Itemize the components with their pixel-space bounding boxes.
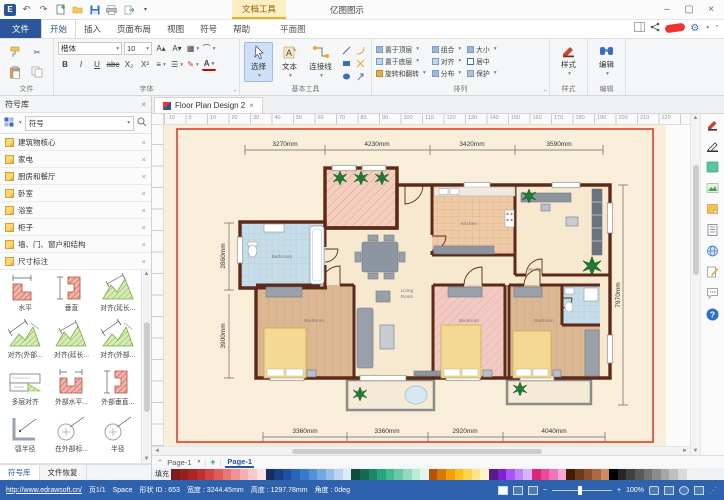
ribbon-group-file: ✂ 文件 — [0, 39, 54, 95]
palette-swatch[interactable] — [661, 469, 670, 480]
palette-swatch[interactable] — [437, 469, 446, 480]
space-label: Space — [113, 487, 133, 494]
palette-swatch[interactable] — [171, 469, 180, 480]
ribbon-tab-bar: 文件 开始 插入 页面布局 视图 符号 帮助 平面图 ⚙ ▾ ⌃ — [0, 20, 724, 39]
library-item-bathroom[interactable]: 浴室× — [0, 202, 151, 219]
shape-id: 形状 ID : 653 — [139, 485, 179, 495]
hscroll-thumb[interactable] — [292, 449, 542, 454]
rectangle-tool-icon[interactable] — [340, 57, 353, 69]
ruler-number: 180 — [576, 115, 585, 121]
ribbon: ✂ 文件 楷体▾ 10▾ A▴ A▾ ▦▾ ⌒▾ B I U abc X₂ X² — [0, 39, 724, 96]
ruler-number: 160 — [533, 115, 542, 121]
increase-font-icon[interactable]: A▴ — [154, 42, 168, 55]
distribute-button[interactable]: 分布▾ — [432, 68, 461, 78]
palette-swatch[interactable] — [515, 469, 524, 480]
palette-swatch[interactable] — [455, 469, 464, 480]
ribbon-group-arrange: 置于顶层▾ 置于底层▾ 旋转和翻转▾ 组合▾ 对齐▾ 分布▾ 大小▾ 居中 保护… — [372, 39, 550, 95]
horizontal-scrollbar[interactable]: ◄ ► — [152, 446, 690, 455]
arc-text-icon[interactable]: ⌒▾ — [202, 42, 216, 55]
draw-tools — [340, 42, 367, 82]
palette-swatch[interactable] — [549, 469, 558, 480]
text-tool-button[interactable]: A 文本▾ — [275, 42, 304, 82]
border-style-icon[interactable]: ▦▾ — [186, 42, 200, 55]
palette-swatch[interactable] — [678, 469, 687, 480]
underline-button[interactable]: U — [90, 58, 104, 71]
normal-view-icon[interactable] — [498, 486, 508, 495]
symbol-library-panel: 符号库× ▾ 符号▾ 建筑物核心× 家电× 厨房和餐厅× 卧室× 浴室× 柜子×… — [0, 96, 152, 480]
palette-swatch[interactable] — [283, 469, 292, 480]
right-tool-strip: ▲ ▼ ? — [690, 114, 724, 455]
svg-text:A: A — [286, 48, 292, 58]
panel-close-icon[interactable]: × — [141, 100, 146, 109]
document-lines-icon[interactable] — [706, 223, 720, 237]
ruler-number: 40 — [275, 115, 281, 121]
palette-swatch[interactable] — [257, 469, 266, 480]
pen-settings-icon[interactable] — [706, 139, 720, 153]
tab-symbol-library[interactable]: 符号库 — [0, 465, 40, 480]
page-tab-page1[interactable]: Page-1 — [225, 457, 254, 468]
distribute-icon — [432, 70, 439, 77]
symbol-multilayer-align[interactable]: 多层对齐 — [2, 366, 48, 413]
palette-swatch[interactable] — [446, 469, 455, 480]
edit-button[interactable]: 编辑▾ — [592, 42, 621, 79]
undo-icon[interactable]: ↶ — [20, 3, 33, 16]
fill-label: 填充 — [155, 469, 169, 479]
page-tab-bar: ⌃ Page-1 ▾ | + | Page-1 — [152, 455, 724, 468]
library-item-building-core[interactable]: 建筑物核心× — [0, 134, 151, 151]
library-item-cabinet[interactable]: 柜子× — [0, 219, 151, 236]
left-panel-tabs: 符号库 文件恢复 — [0, 464, 151, 480]
ruler-number: 110 — [425, 115, 434, 121]
dim-top-4: 3590mm — [546, 141, 571, 148]
symbol-outer-vertical[interactable]: 外部垂直... — [95, 366, 141, 413]
center-icon — [467, 58, 474, 65]
ribbon-group-style: 样式▾ 样式 — [550, 39, 588, 95]
ruler-number: 70 — [339, 115, 345, 121]
app-window: E ↶ ↷ ▾ 文档工具 亿图图示 – ▢ × 文件 开始 插入 页面布局 视图… — [0, 0, 724, 500]
size-button[interactable]: 大小▾ — [467, 44, 496, 54]
palette-swatch[interactable] — [480, 469, 489, 480]
svg-text:?: ? — [710, 309, 715, 319]
new-page-icon[interactable] — [54, 3, 67, 16]
library-item-bedroom[interactable]: 卧室× — [0, 185, 151, 202]
canvas-vscrollbar[interactable]: ▲ ▼ — [690, 114, 700, 455]
rotate-icon — [376, 70, 383, 77]
ruler-corner — [152, 114, 164, 125]
group-label-font: 字体 — [54, 84, 239, 94]
palette-swatch[interactable] — [403, 469, 412, 480]
symbol-outer-label[interactable]: 在外部标... — [48, 413, 94, 460]
dim-bottom-1: 3360mm — [292, 428, 317, 435]
color-palette — [171, 469, 695, 480]
settings-gear-icon[interactable]: ⚙ — [690, 23, 699, 34]
pen-tool-icon[interactable] — [354, 70, 367, 82]
palette-swatch[interactable] — [592, 469, 601, 480]
palette-swatch[interactable] — [523, 469, 532, 480]
palette-swatch[interactable] — [635, 469, 644, 480]
zoom-in-icon[interactable]: + — [617, 487, 621, 494]
palette-swatch[interactable] — [429, 469, 438, 480]
note-icon[interactable] — [706, 202, 720, 216]
comment-icon[interactable] — [706, 286, 720, 300]
print-icon[interactable] — [105, 3, 118, 16]
palette-swatch[interactable] — [558, 469, 567, 480]
ruler-number: 140 — [490, 115, 499, 121]
edit-page-icon[interactable] — [706, 265, 720, 279]
page-selector-caret-icon[interactable]: ▾ — [197, 459, 200, 465]
document-close-icon[interactable]: × — [249, 101, 254, 110]
tab-file-recovery[interactable]: 文件恢复 — [40, 465, 87, 480]
page-view-icon[interactable] — [513, 486, 523, 495]
palette-swatch[interactable] — [274, 469, 283, 480]
ribbon-group-font: 楷体▾ 10▾ A▴ A▾ ▦▾ ⌒▾ B I U abc X₂ X² ≡▾ ☰… — [54, 39, 240, 95]
superscript-button[interactable]: X² — [138, 58, 152, 71]
palette-swatch[interactable] — [223, 469, 232, 480]
tab-floorplan-contextual[interactable]: 平面图 — [272, 19, 314, 38]
dim-bottom-2: 3360mm — [374, 428, 399, 435]
palette-swatch[interactable] — [687, 469, 696, 480]
symbol-grid: 水平 垂直 对齐(延长... 对齐(外部... 对齐(延长... 对齐(外部..… — [0, 270, 141, 463]
ruler-number: 120 — [447, 115, 456, 121]
fit-window-icon[interactable] — [649, 486, 659, 495]
palette-swatch[interactable] — [566, 469, 575, 480]
ruler-number: 80 — [361, 115, 367, 121]
palette-swatch[interactable] — [412, 469, 421, 480]
vscroll-thumb[interactable] — [693, 165, 699, 275]
paste-icon[interactable] — [8, 66, 22, 79]
palette-swatch[interactable] — [291, 469, 300, 480]
palette-swatch[interactable] — [369, 469, 378, 480]
library-close-icon[interactable]: × — [142, 172, 146, 181]
palette-swatch[interactable] — [317, 469, 326, 480]
ruler-number: 190 — [597, 115, 606, 121]
library-close-icon[interactable]: × — [142, 206, 146, 215]
scroll-up-icon[interactable]: ▲ — [144, 271, 150, 277]
group-label-style: 样式 — [550, 84, 587, 94]
palette-swatch[interactable] — [626, 469, 635, 480]
panel-toggle-icon[interactable] — [634, 22, 645, 34]
ruler-number: 100 — [404, 115, 413, 121]
cut-icon[interactable]: ✂ — [30, 46, 44, 59]
symbol-vertical[interactable]: 垂直 — [48, 272, 94, 319]
settings-caret-icon[interactable]: ▾ — [706, 25, 709, 31]
help-icon[interactable]: ? — [706, 307, 720, 321]
rotate-flip-button[interactable]: 旋转和翻转▾ — [376, 68, 426, 78]
tab-insert[interactable]: 插入 — [76, 19, 109, 38]
shape-height: 高度 : 1297.78mm — [251, 485, 308, 495]
group-label-file: 文件 — [0, 84, 53, 94]
palette-swatch[interactable] — [386, 469, 395, 480]
status-bar: http://www.edrawsoft.cn/ 页1/1 Space 形状 I… — [0, 480, 724, 500]
ruler-number: 30 — [253, 115, 259, 121]
palette-swatch[interactable] — [205, 469, 214, 480]
palette-swatch[interactable] — [343, 469, 352, 480]
freeform-tool-icon[interactable] — [354, 57, 367, 69]
palette-swatch[interactable] — [326, 469, 335, 480]
italic-button[interactable]: I — [74, 58, 88, 71]
center-button[interactable]: 居中 — [467, 56, 496, 66]
insert-picture-icon[interactable] — [706, 181, 720, 195]
bold-button[interactable]: B — [58, 58, 72, 71]
align-button[interactable]: 对齐▾ — [432, 56, 461, 66]
symbol-aligned-extended[interactable]: 对齐(延长... — [95, 272, 141, 319]
document-icon — [163, 102, 171, 110]
page-info: 页1/1 — [89, 485, 106, 495]
palette-swatch[interactable] — [214, 469, 223, 480]
library-item-dimensioning[interactable]: 尺寸标注× — [0, 253, 151, 270]
top-ruler: -100102030405060708090100110120130140150… — [164, 114, 690, 125]
symbol-search-input[interactable]: 符号▾ — [25, 116, 134, 131]
library-icon — [5, 223, 14, 232]
ellipse-tool-icon[interactable] — [340, 70, 353, 82]
palette-swatch[interactable] — [489, 469, 498, 480]
palette-swatch[interactable] — [377, 469, 386, 480]
ruler-number: 60 — [318, 115, 324, 121]
close-button[interactable]: × — [700, 0, 722, 18]
palette-swatch[interactable] — [360, 469, 369, 480]
group-button[interactable]: 组合▾ — [432, 44, 461, 54]
library-category-icon[interactable] — [4, 117, 14, 129]
palette-swatch[interactable] — [266, 469, 275, 480]
library-close-icon[interactable]: × — [142, 138, 146, 147]
library-item-walls-doors-windows[interactable]: 墙、门、窗户和结构× — [0, 236, 151, 253]
save-icon[interactable] — [88, 3, 101, 16]
strikethrough-button[interactable]: abc — [106, 58, 120, 71]
title-bar: E ↶ ↷ ▾ 文档工具 亿图图示 – ▢ × — [0, 0, 724, 20]
palette-swatch[interactable] — [420, 469, 429, 480]
palette-swatch[interactable] — [601, 469, 610, 480]
scroll-down-icon[interactable]: ▼ — [693, 448, 699, 454]
protect-button[interactable]: 保护▾ — [467, 68, 496, 78]
resize-grip[interactable]: ⋰ — [709, 486, 718, 495]
font-size-select[interactable]: 10▾ — [124, 42, 152, 55]
document-tab[interactable]: Floor Plan Design 2 × — [154, 97, 263, 113]
room-label-bedroom-left: Bedroom — [304, 318, 323, 324]
open-folder-icon[interactable] — [71, 3, 84, 16]
palette-swatch[interactable] — [188, 469, 197, 480]
tab-view[interactable]: 视图 — [159, 19, 192, 38]
redo-icon[interactable]: ↷ — [37, 3, 50, 16]
grid-toggle-icon[interactable] — [694, 486, 704, 495]
scroll-up-icon[interactable]: ▲ — [693, 115, 699, 121]
ruler-number: 170 — [554, 115, 563, 121]
dim-left-2: 3900mm — [220, 323, 227, 348]
zoom-slider[interactable] — [552, 490, 612, 491]
ribbon-group-edit: 编辑▾ 编辑 — [588, 39, 626, 95]
edrawsoft-link[interactable]: http://www.edrawsoft.cn/ — [6, 487, 82, 494]
collapse-pages-icon[interactable]: ⌃ — [157, 458, 163, 467]
group-icon — [432, 46, 439, 53]
connector-tool-button[interactable]: 连接线▾ — [306, 42, 335, 82]
room-label-bathroom: Bathroom — [272, 254, 293, 260]
palette-swatch[interactable] — [575, 469, 584, 480]
ruler-number: -10 — [167, 115, 175, 121]
library-close-icon[interactable]: × — [142, 223, 146, 232]
ribbon-group-basic-tools: 选择▾ A 文本▾ 连接线▾ 基本 — [240, 39, 372, 95]
dim-bottom-3: 2920mm — [452, 428, 477, 435]
ruler-number: 210 — [640, 115, 649, 121]
ruler-number: 200 — [619, 115, 628, 121]
send-back-icon — [376, 58, 383, 65]
web-globe-icon[interactable] — [706, 244, 720, 258]
font-dialog-launcher-icon[interactable]: ⌐ — [233, 88, 237, 94]
fullscreen-view-icon[interactable] — [528, 486, 538, 495]
tab-help[interactable]: 帮助 — [225, 19, 258, 38]
symbol-panel-title: 符号库 — [5, 99, 29, 110]
library-icon — [5, 189, 14, 198]
copy-icon[interactable] — [30, 66, 44, 79]
library-item-appliances[interactable]: 家电× — [0, 151, 151, 168]
library-icon — [5, 138, 14, 147]
maximize-button[interactable]: ▢ — [678, 0, 700, 18]
collapse-ribbon-icon[interactable]: ⌃ — [714, 24, 720, 32]
shape-width: 宽度 : 3244.45mm — [187, 485, 244, 495]
ruler-number: 10 — [210, 115, 216, 121]
library-icon — [5, 257, 14, 266]
palette-swatch[interactable] — [180, 469, 189, 480]
symbol-outer-horizontal[interactable]: 外部水平... — [48, 366, 94, 413]
library-close-icon[interactable]: × — [142, 257, 146, 266]
line-tool-icon[interactable] — [340, 44, 353, 56]
library-item-kitchen-dining[interactable]: 厨房和餐厅× — [0, 168, 151, 185]
lock-icon — [467, 70, 474, 77]
left-ruler — [152, 125, 164, 446]
style-button[interactable]: 样式▾ — [554, 42, 583, 79]
ruler-number: 90 — [382, 115, 388, 121]
dim-left-1: 2860mm — [220, 243, 227, 268]
share-icon[interactable] — [650, 22, 660, 34]
format-painter-icon[interactable] — [8, 46, 22, 59]
format-style-icon[interactable] — [706, 118, 720, 132]
align-icon — [432, 58, 439, 65]
drawing-canvas[interactable]: 3270mm 4230mm 3420mm 3590mm 3360mm 3360m… — [164, 125, 681, 446]
palette-swatch[interactable] — [584, 469, 593, 480]
decrease-font-icon[interactable]: A▾ — [170, 42, 184, 55]
tab-home[interactable]: 开始 — [41, 19, 76, 38]
palette-swatch[interactable] — [669, 469, 678, 480]
search-icon[interactable] — [137, 117, 147, 129]
zoom-out-icon[interactable]: − — [543, 487, 547, 494]
ruler-number: 130 — [468, 115, 477, 121]
zoom-level[interactable]: 100% — [626, 487, 644, 494]
group-label-basic-tools: 基本工具 — [240, 84, 371, 94]
dim-top-1: 3270mm — [272, 141, 297, 148]
symbol-aligned-outer[interactable]: 对齐(外部... — [2, 319, 48, 366]
palette-swatch[interactable] — [498, 469, 507, 480]
scroll-down-icon[interactable]: ▼ — [144, 456, 150, 462]
room-label-living-1: Living — [401, 288, 414, 294]
minimize-button[interactable]: – — [656, 0, 678, 18]
bring-front-icon — [376, 46, 383, 53]
palette-swatch[interactable] — [240, 469, 249, 480]
tab-page-layout[interactable]: 页面布局 — [109, 19, 159, 38]
palette-swatch[interactable] — [248, 469, 257, 480]
bullet-list-icon[interactable]: ☰▾ — [170, 58, 184, 71]
library-close-icon[interactable]: × — [142, 240, 146, 249]
palette-swatch[interactable] — [197, 469, 206, 480]
subscript-button[interactable]: X₂ — [122, 58, 136, 71]
palette-swatch[interactable] — [644, 469, 653, 480]
palette-swatch[interactable] — [541, 469, 550, 480]
palette-swatch[interactable] — [472, 469, 481, 480]
palette-swatch[interactable] — [652, 469, 661, 480]
palette-swatch[interactable] — [309, 469, 318, 480]
arc-tool-icon[interactable] — [354, 44, 367, 56]
symbol-aligned-outer-2[interactable]: 对齐(外部... — [95, 319, 141, 366]
add-page-button[interactable]: + — [210, 457, 215, 467]
scroll-right-icon[interactable]: ► — [682, 448, 688, 454]
font-family-select[interactable]: 楷体▾ — [58, 42, 122, 55]
category-caret-icon[interactable]: ▾ — [19, 120, 22, 126]
window-controls: – ▢ × — [656, 0, 722, 18]
library-icon — [5, 172, 14, 181]
symbol-horizontal[interactable]: 水平 — [2, 272, 48, 319]
library-close-icon[interactable]: × — [142, 155, 146, 164]
font-color-button[interactable]: A▾ — [202, 58, 216, 71]
size-icon — [467, 46, 474, 53]
zoom-slider-thumb[interactable] — [578, 486, 582, 495]
palette-swatch[interactable] — [463, 469, 472, 480]
dim-top-3: 3420mm — [459, 141, 484, 148]
page-setup-icon[interactable] — [664, 486, 674, 495]
ruler-number: 20 — [232, 115, 238, 121]
symbol-scrollbar[interactable]: ▲ ▼ — [141, 270, 151, 463]
room-label-kitchen: Kitchen — [461, 221, 477, 227]
scroll-left-icon[interactable]: ◄ — [154, 448, 160, 454]
palette-swatch[interactable] — [618, 469, 627, 480]
palette-swatch[interactable] — [300, 469, 309, 480]
dim-top-2: 4230mm — [364, 141, 389, 148]
palette-swatch[interactable] — [394, 469, 403, 480]
find-icon[interactable] — [679, 486, 689, 495]
line-spacing-icon[interactable]: ≡▾ — [154, 58, 168, 71]
fill-color-icon[interactable] — [706, 160, 720, 174]
ruler-number: 150 — [511, 115, 520, 121]
scrollbar-thumb[interactable] — [144, 322, 150, 412]
room-label-bedroom-mid: Bedroom — [459, 318, 478, 324]
room-label-study: Study — [528, 267, 541, 273]
send-to-back-button[interactable]: 置于底层▾ — [376, 56, 426, 66]
palette-swatch[interactable] — [506, 469, 515, 480]
arrange-dialog-launcher-icon[interactable]: ⌐ — [543, 88, 547, 94]
app-logo-icon[interactable]: E — [4, 4, 16, 16]
highlight-icon[interactable]: ✎▾ — [186, 58, 200, 71]
library-icon — [5, 155, 14, 164]
export-icon[interactable] — [122, 3, 135, 16]
palette-swatch[interactable] — [609, 469, 618, 480]
app-title: 亿图图示 — [330, 0, 364, 20]
tab-file[interactable]: 文件 — [0, 19, 41, 38]
qat-more-icon[interactable]: ▾ — [139, 3, 152, 16]
bring-to-front-button[interactable]: 置于顶层▾ — [376, 44, 426, 54]
page-selector[interactable]: Page-1 — [167, 458, 191, 467]
palette-swatch[interactable] — [334, 469, 343, 480]
room-label-living-2: Room — [401, 294, 414, 300]
library-close-icon[interactable]: × — [142, 189, 146, 198]
dim-right: 7970mm — [615, 282, 622, 307]
palette-swatch[interactable] — [231, 469, 240, 480]
symbol-arc-radius[interactable]: 弧半径 — [2, 413, 48, 460]
select-tool-button[interactable]: 选择▾ — [244, 42, 273, 82]
color-palette-row: 填充 — [152, 468, 724, 480]
tab-symbols[interactable]: 符号 — [192, 19, 225, 38]
symbol-aligned-extended-2[interactable]: 对齐(延长... — [48, 319, 94, 366]
palette-swatch[interactable] — [532, 469, 541, 480]
document-tab-bar: Floor Plan Design 2 × — [152, 96, 724, 114]
library-icon — [5, 240, 14, 249]
symbol-radius[interactable]: 半径 — [95, 413, 141, 460]
palette-swatch[interactable] — [351, 469, 360, 480]
